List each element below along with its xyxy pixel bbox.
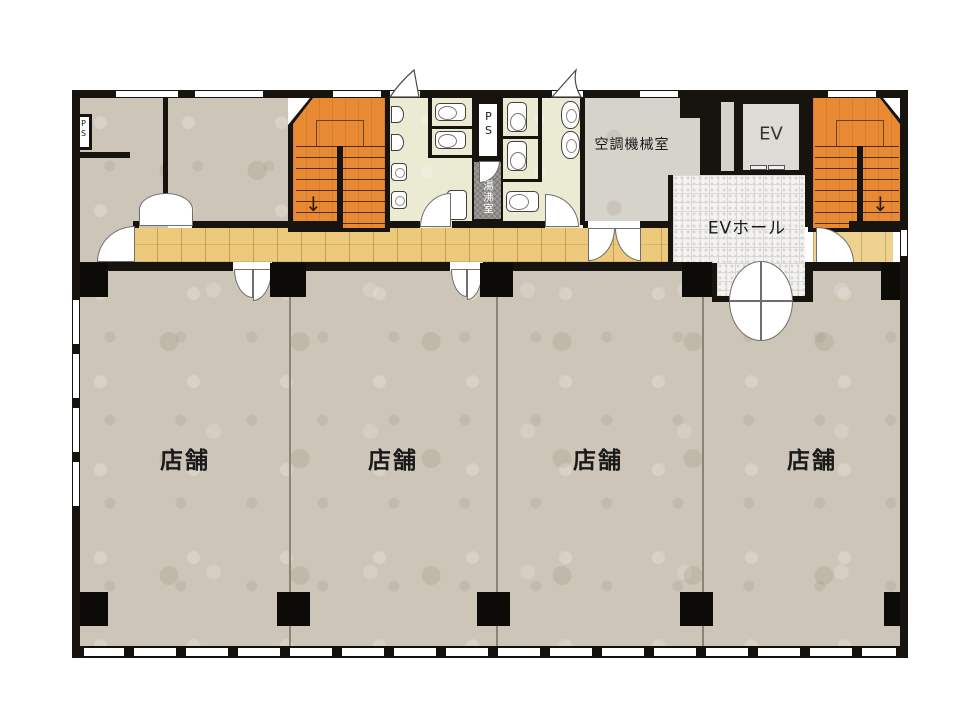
- floor-plan: ↓ ↓ PS 湯沸室 空調機械室 EV: [0, 0, 980, 718]
- machine-room-extension: [680, 118, 700, 175]
- toilet-stall-wall: [538, 98, 542, 182]
- urinal: [391, 106, 404, 123]
- machine-room: [585, 98, 680, 221]
- wall-segment: [849, 221, 900, 228]
- stair-right-steps: [815, 146, 857, 226]
- entrance-door-swing: [550, 68, 583, 98]
- sink-bowl: [395, 196, 405, 206]
- room-door-swing: [139, 193, 193, 226]
- column: [277, 592, 310, 626]
- wall-segment: [640, 221, 673, 228]
- window-segment: [73, 462, 79, 506]
- window-segment: [901, 230, 907, 256]
- column: [80, 592, 108, 626]
- elevator-door: [768, 165, 785, 170]
- shop-unit-1-label: 店舗: [160, 441, 210, 475]
- window-segment: [828, 91, 876, 97]
- toilet-bowl: [510, 113, 526, 131]
- wall-segment: [580, 98, 585, 225]
- toilet-stall-wall: [428, 126, 473, 129]
- window-segment: [73, 300, 79, 344]
- stair-right-rail: [836, 120, 884, 146]
- toilet-bowl: [510, 152, 526, 170]
- stair-left-rail: [316, 120, 364, 146]
- window-segment: [333, 91, 381, 97]
- column: [270, 263, 306, 297]
- column: [80, 263, 108, 297]
- column: [477, 592, 510, 626]
- toilet-bowl: [509, 194, 529, 210]
- wall-segment: [896, 646, 908, 658]
- stair-down-arrow: ↓: [872, 192, 889, 216]
- wall-segment: [805, 98, 813, 227]
- machine-door-opening: [588, 221, 640, 228]
- elevator-door: [750, 165, 767, 170]
- outer-wall-bottom-glazing: [72, 646, 908, 658]
- wall-segment: [712, 263, 717, 296]
- wall-segment: [385, 98, 390, 232]
- column: [682, 263, 712, 297]
- elevator-hall-label: EVホール: [708, 214, 786, 239]
- elevator-label: EV: [759, 124, 783, 145]
- wall-segment: [712, 296, 729, 302]
- sink-bowl: [566, 139, 577, 153]
- toilet-bowl: [438, 106, 457, 120]
- wall-segment: [390, 221, 420, 228]
- wall-segment: [452, 221, 545, 228]
- wall-segment: [668, 175, 673, 263]
- wall-segment: [680, 98, 722, 118]
- shop-unit-3-label: 店舗: [573, 441, 623, 475]
- sink-bowl: [566, 109, 577, 123]
- column: [680, 592, 713, 626]
- entrance-door-swing: [388, 68, 421, 98]
- wall-segment: [483, 262, 712, 271]
- pipe-space-left-label: PS: [79, 119, 88, 139]
- window-segment: [116, 91, 178, 97]
- urinal: [391, 134, 404, 151]
- machine-room-label: 空調機械室: [595, 134, 670, 154]
- shop-unit-2-label: 店舗: [368, 441, 418, 475]
- stair-right-center-wall: [857, 146, 863, 228]
- toilet-bowl: [438, 134, 457, 148]
- toilet-stall-wall: [503, 136, 542, 139]
- hot-water-room-label: 湯沸室: [481, 180, 496, 215]
- window-segment: [73, 354, 79, 398]
- window-segment: [73, 408, 79, 452]
- shop-unit-4-label: 店舗: [787, 441, 837, 475]
- wall-segment: [72, 646, 84, 658]
- stair-down-arrow: ↓: [305, 192, 322, 216]
- stair-left-center-wall: [337, 146, 343, 228]
- wall-segment: [72, 152, 130, 158]
- column: [480, 263, 513, 297]
- stair-left-steps: [343, 146, 385, 226]
- outer-wall-right: [900, 90, 908, 658]
- wall-segment: [288, 221, 343, 228]
- window-segment: [195, 91, 263, 97]
- toilet-stall-wall: [428, 155, 473, 158]
- duct-interior: [721, 102, 734, 171]
- sink-bowl: [395, 168, 405, 178]
- wall-segment: [192, 221, 288, 228]
- toilet-stall-wall: [503, 179, 542, 182]
- pipe-space-label: PS: [482, 110, 495, 138]
- window-segment: [640, 91, 678, 97]
